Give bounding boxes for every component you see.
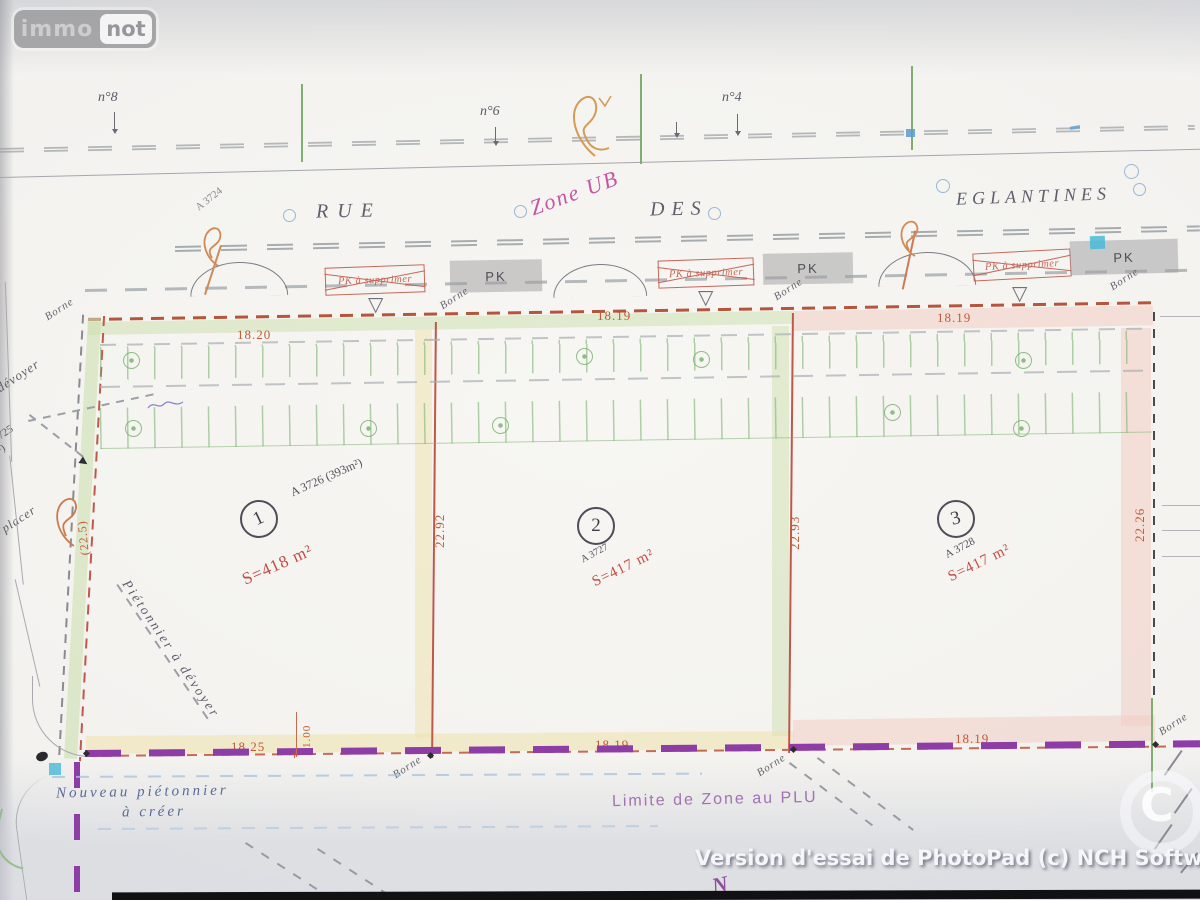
- lot-1-ref: A 3726 (393m²): [288, 455, 364, 500]
- survey-circle-icon: [936, 179, 950, 193]
- dim-side-lot3: 22.26: [1132, 508, 1148, 542]
- neighbour-line: [1160, 316, 1200, 317]
- parking-comb-bottom: [100, 391, 1153, 449]
- plan-photo: n°8 n°6 n°4 A 3724 RUE Zone UB DES EGLAN…: [0, 0, 1200, 900]
- pk-box-3: PK: [1070, 239, 1179, 276]
- pietonnier-devoyer-label: Piétonnier à dévoyer: [119, 577, 224, 721]
- lot3-right-black-dashes: [1153, 312, 1155, 702]
- tree-symbol-icon: [125, 420, 142, 437]
- dim-top-lot3: 18.19: [937, 310, 971, 326]
- survey-point-square-icon: [906, 129, 915, 137]
- cyan-marker-icon: [1090, 236, 1105, 250]
- logo-not-text: not: [106, 17, 145, 41]
- street-name-eglantines: EGLANTINES: [956, 183, 1112, 209]
- pietonnier-dashed-path: [116, 584, 213, 726]
- pencil-loop-icon: [565, 92, 617, 162]
- photo-bottom-black-bar: [112, 890, 1200, 900]
- cyan-marker-icon: [49, 763, 61, 775]
- borne-label: Borne: [43, 296, 76, 323]
- offset-dim: 1.00: [301, 725, 313, 748]
- tree-symbol-icon: [123, 352, 140, 369]
- lot-3-circle: 3: [937, 500, 975, 538]
- survey-circle-icon: [1124, 164, 1139, 179]
- survey-triangle-icon: ▽: [1012, 283, 1027, 303]
- shade-top: [0, 0, 1200, 75]
- utility-pole-line: [301, 84, 303, 162]
- road-centerline-dashes: [175, 225, 1200, 252]
- survey-triangle-icon: ▽: [698, 287, 713, 307]
- pencil-loop-icon: [50, 494, 86, 550]
- survey-circle-icon: [283, 209, 296, 222]
- tree-symbol-icon: [1013, 420, 1030, 437]
- lot-1-number: 1: [250, 507, 268, 531]
- survey-circle-icon: [514, 205, 527, 218]
- utility-pole-line: [640, 74, 642, 164]
- small-tick-icon: [676, 122, 677, 134]
- photopad-trial-watermark: Version d'essai de PhotoPad (c) NCH Soft…: [695, 846, 1200, 870]
- parcel-ref-top: A 3724: [194, 186, 225, 214]
- borne-label: Borne: [1157, 711, 1190, 738]
- nouveau-pietonnier-line1: Nouveau piétonnier: [56, 782, 229, 802]
- dim-side-lot1: 22.92: [432, 514, 448, 548]
- lot-2-ref: A 3727: [579, 542, 610, 565]
- pk-label: PK: [797, 261, 819, 276]
- house-number-4: n°4: [722, 90, 742, 106]
- pk-remove-box-3: PK à supprimer: [972, 248, 1071, 281]
- tree-symbol-icon: [492, 417, 509, 434]
- pencil-loop-icon: [893, 218, 929, 260]
- house-6-arrow-icon: [495, 127, 496, 142]
- lot-1-circle: 1: [240, 500, 278, 538]
- house-4-arrow-icon: [737, 114, 738, 132]
- lot3-top-strip: [793, 305, 1153, 331]
- tree-symbol-icon: [693, 351, 710, 368]
- photopad-c-letter: C: [1140, 778, 1174, 832]
- survey-circle-icon: [708, 207, 721, 220]
- logo-immo-text: immo: [14, 17, 100, 42]
- driveway-arc: [553, 263, 648, 298]
- pencil-note-icon: [146, 396, 186, 414]
- zone-ub-label: Zone UB: [526, 165, 622, 221]
- neighbour-line: [1162, 556, 1200, 557]
- survey-triangle-icon: ▽: [368, 294, 383, 314]
- lot-2-number: 2: [591, 515, 601, 537]
- dim-top-lot2: 18.19: [597, 308, 631, 324]
- nouveau-pietonnier-line2: à créer: [122, 803, 186, 821]
- street-name-des: DES: [650, 197, 708, 221]
- road-left-edge: [15, 579, 41, 686]
- house-8-arrow-icon: [114, 112, 115, 130]
- road-left-curve: [32, 676, 91, 757]
- immonot-logo: immo not: [14, 10, 156, 48]
- survey-circle-icon: [1133, 183, 1146, 196]
- dim-side-lot2: 22.93: [787, 516, 803, 550]
- zone-limit-purple-vertical: [74, 762, 80, 900]
- pk-label: PK: [485, 268, 507, 283]
- pk-box-2: PK: [763, 252, 854, 285]
- neighbour-line: [1162, 530, 1200, 531]
- pk-label: PK: [1113, 249, 1135, 265]
- house-number-8: n°8: [98, 90, 118, 106]
- lot-2-circle: 2: [577, 507, 615, 545]
- lot1-right-strip: [415, 330, 432, 738]
- dim-top-lot1: 18.20: [237, 327, 271, 343]
- lot-1-area: S=418 m²: [239, 541, 316, 590]
- pk-remove-box-2: PK à supprimer: [658, 257, 755, 288]
- tree-symbol-icon: [576, 348, 593, 365]
- tree-symbol-icon: [1015, 352, 1032, 369]
- tree-symbol-icon: [884, 404, 901, 421]
- neighbour-line: [1162, 505, 1200, 506]
- logo-not-badge: not: [100, 14, 152, 44]
- house-number-6: n°6: [480, 104, 500, 120]
- lot-3-number: 3: [949, 507, 964, 531]
- pk-remove-box-1: PK à supprimer: [325, 264, 426, 295]
- street-name-rue: RUE: [316, 199, 382, 223]
- tree-symbol-icon: [360, 420, 377, 437]
- utility-pole-line: [911, 66, 913, 150]
